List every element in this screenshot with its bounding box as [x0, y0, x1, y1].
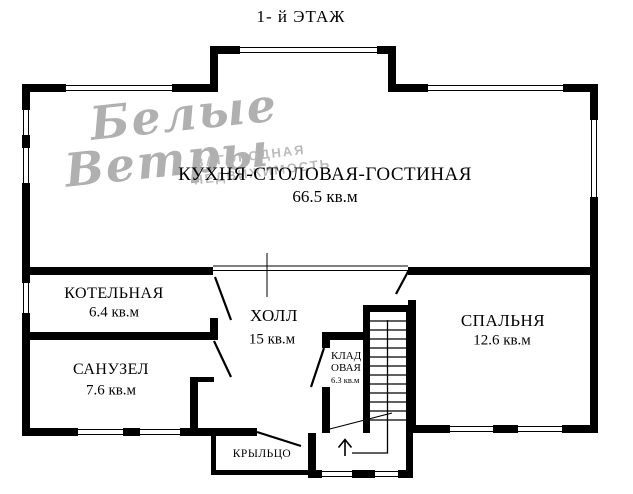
- floor-plan-drawing: [0, 0, 633, 494]
- window-right: [590, 120, 598, 197]
- window-entry-bottom-2: [375, 470, 398, 478]
- room-area-storage: 6.3 кв.м: [331, 374, 361, 386]
- room-area-bedroom: 12.6 кв.м: [473, 333, 531, 350]
- room-label-storage-line1: КЛАД: [331, 350, 361, 362]
- living-hall-opening: [213, 253, 408, 297]
- floor-plan: Белые Ветры ЗАГОРОДНАЯ НЕДВИЖИМОСТЬ: [0, 0, 633, 494]
- door-porch: [257, 432, 301, 446]
- room-label-living: КУХНЯ-СТОЛОВАЯ-ГОСТИНАЯ: [178, 164, 472, 186]
- door-bathroom: [214, 341, 231, 377]
- door-storage: [311, 348, 324, 387]
- room-area-bathroom: 7.6 кв.м: [86, 383, 136, 400]
- stair-up-arrow: [339, 440, 352, 457]
- room-label-storage-line2: ОВАЯ: [331, 362, 361, 374]
- window-bedroom-bottom-1: [450, 425, 493, 433]
- window-entry-bottom-1: [322, 470, 352, 478]
- page-title: 1- й ЭТАЖ: [256, 7, 345, 27]
- room-area-living: 66.5 кв.м: [292, 187, 357, 207]
- window-top-right: [428, 84, 563, 92]
- room-label-bedroom: СПАЛЬНЯ: [461, 311, 545, 331]
- window-bay: [240, 46, 377, 54]
- door-boiler: [215, 277, 231, 320]
- door-bedroom: [396, 268, 410, 294]
- room-label-boiler: КОТЕЛЬНАЯ: [64, 285, 163, 303]
- window-top-left: [66, 84, 172, 92]
- window-left-lower: [22, 283, 30, 313]
- room-area-boiler: 6.4 кв.м: [89, 305, 139, 322]
- window-bedroom-bottom-2: [518, 425, 562, 433]
- room-area-hall: 15 кв.м: [249, 332, 295, 349]
- room-label-bathroom: САНУЗЕЛ: [73, 361, 149, 379]
- room-label-hall: ХОЛЛ: [250, 306, 298, 326]
- room-label-storage: КЛАД ОВАЯ 6.3 кв.м: [331, 350, 361, 386]
- stair-break-line: [322, 413, 392, 431]
- window-bathroom-bottom: [78, 428, 180, 436]
- window-left-upper: [22, 110, 30, 183]
- room-label-porch: КРЫЛЬЦО: [233, 448, 291, 460]
- windows: [22, 46, 598, 478]
